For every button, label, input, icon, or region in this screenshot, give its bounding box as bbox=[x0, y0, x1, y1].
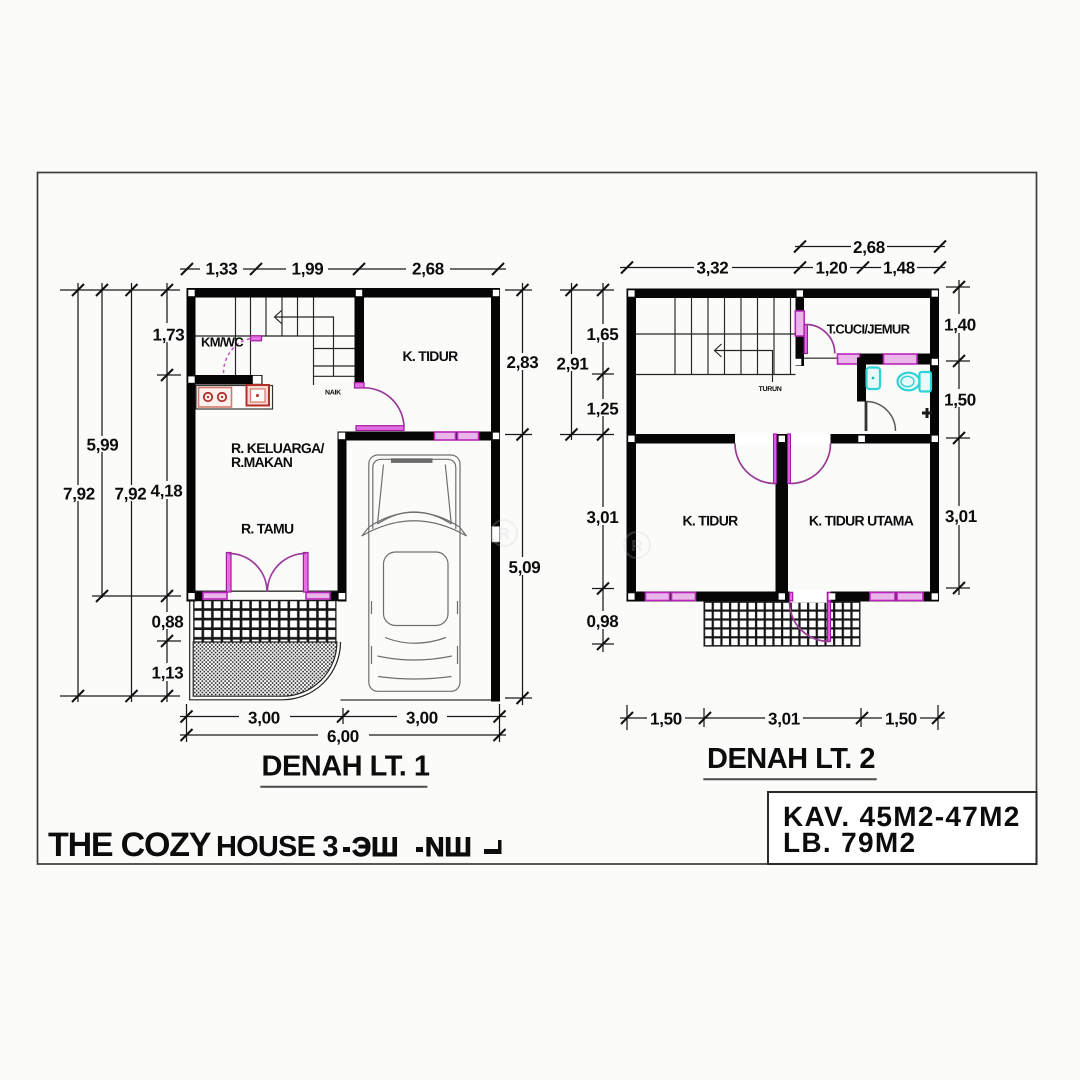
svg-text:THE COZY: THE COZY bbox=[48, 826, 212, 864]
svg-text:1,20: 1,20 bbox=[816, 259, 848, 278]
svg-text:7,92: 7,92 bbox=[115, 485, 147, 504]
svg-text:K. TIDUR: K. TIDUR bbox=[682, 513, 738, 529]
svg-text:3,32: 3,32 bbox=[697, 259, 729, 278]
svg-text:1,13: 1,13 bbox=[152, 664, 184, 683]
svg-text:1,25: 1,25 bbox=[587, 400, 619, 419]
svg-text:2,83: 2,83 bbox=[507, 353, 539, 372]
svg-text:1,48: 1,48 bbox=[883, 259, 915, 278]
svg-text:3,01: 3,01 bbox=[945, 507, 977, 526]
svg-text:R: R bbox=[498, 526, 510, 543]
svg-text:2,68: 2,68 bbox=[853, 238, 885, 257]
svg-text:2,91: 2,91 bbox=[557, 355, 589, 374]
svg-text:DENAH LT. 1: DENAH LT. 1 bbox=[262, 751, 430, 783]
svg-text:1,50: 1,50 bbox=[650, 710, 682, 729]
svg-text:1,50: 1,50 bbox=[885, 710, 917, 729]
svg-text:DENAH LT. 2: DENAH LT. 2 bbox=[707, 743, 875, 775]
svg-text:1,65: 1,65 bbox=[587, 325, 619, 344]
svg-text:6,00: 6,00 bbox=[327, 727, 359, 746]
svg-text:1,50: 1,50 bbox=[944, 391, 976, 410]
svg-text:LB. 79M2: LB. 79M2 bbox=[783, 827, 916, 858]
svg-text:7,92: 7,92 bbox=[63, 485, 95, 504]
svg-text:0,98: 0,98 bbox=[587, 612, 619, 631]
svg-text:2,68: 2,68 bbox=[412, 260, 444, 279]
svg-text:4,18: 4,18 bbox=[151, 482, 183, 501]
svg-text:3,01: 3,01 bbox=[768, 710, 800, 729]
svg-text:0,88: 0,88 bbox=[152, 613, 184, 632]
svg-text:ЭШ: ЭШ bbox=[352, 832, 398, 862]
svg-text:K. TIDUR UTAMA: K. TIDUR UTAMA bbox=[809, 513, 914, 529]
svg-text:NШ: NШ bbox=[425, 832, 472, 862]
svg-text:TURUN: TURUN bbox=[759, 386, 782, 393]
svg-text:T.CUCI/JEMUR: T.CUCI/JEMUR bbox=[827, 322, 911, 337]
svg-text:1,99: 1,99 bbox=[292, 260, 324, 279]
svg-text:5,99: 5,99 bbox=[87, 436, 119, 455]
svg-text:K. TIDUR: K. TIDUR bbox=[402, 348, 458, 364]
svg-text:KM/WC: KM/WC bbox=[201, 335, 244, 350]
svg-text:1,33: 1,33 bbox=[206, 260, 238, 279]
svg-text:HOUSE 3: HOUSE 3 bbox=[216, 831, 338, 863]
svg-text:NAIK: NAIK bbox=[325, 390, 341, 397]
svg-text:3,00: 3,00 bbox=[248, 709, 280, 728]
svg-text:3,01: 3,01 bbox=[587, 508, 619, 527]
svg-text:R.MAKAN: R.MAKAN bbox=[231, 454, 293, 470]
svg-text:R: R bbox=[631, 538, 643, 555]
svg-text:3,00: 3,00 bbox=[406, 709, 438, 728]
svg-text:R. TAMU: R. TAMU bbox=[241, 521, 294, 537]
svg-text:1,73: 1,73 bbox=[153, 326, 185, 345]
svg-text:1,40: 1,40 bbox=[944, 316, 976, 335]
svg-text:5,09: 5,09 bbox=[509, 558, 541, 577]
